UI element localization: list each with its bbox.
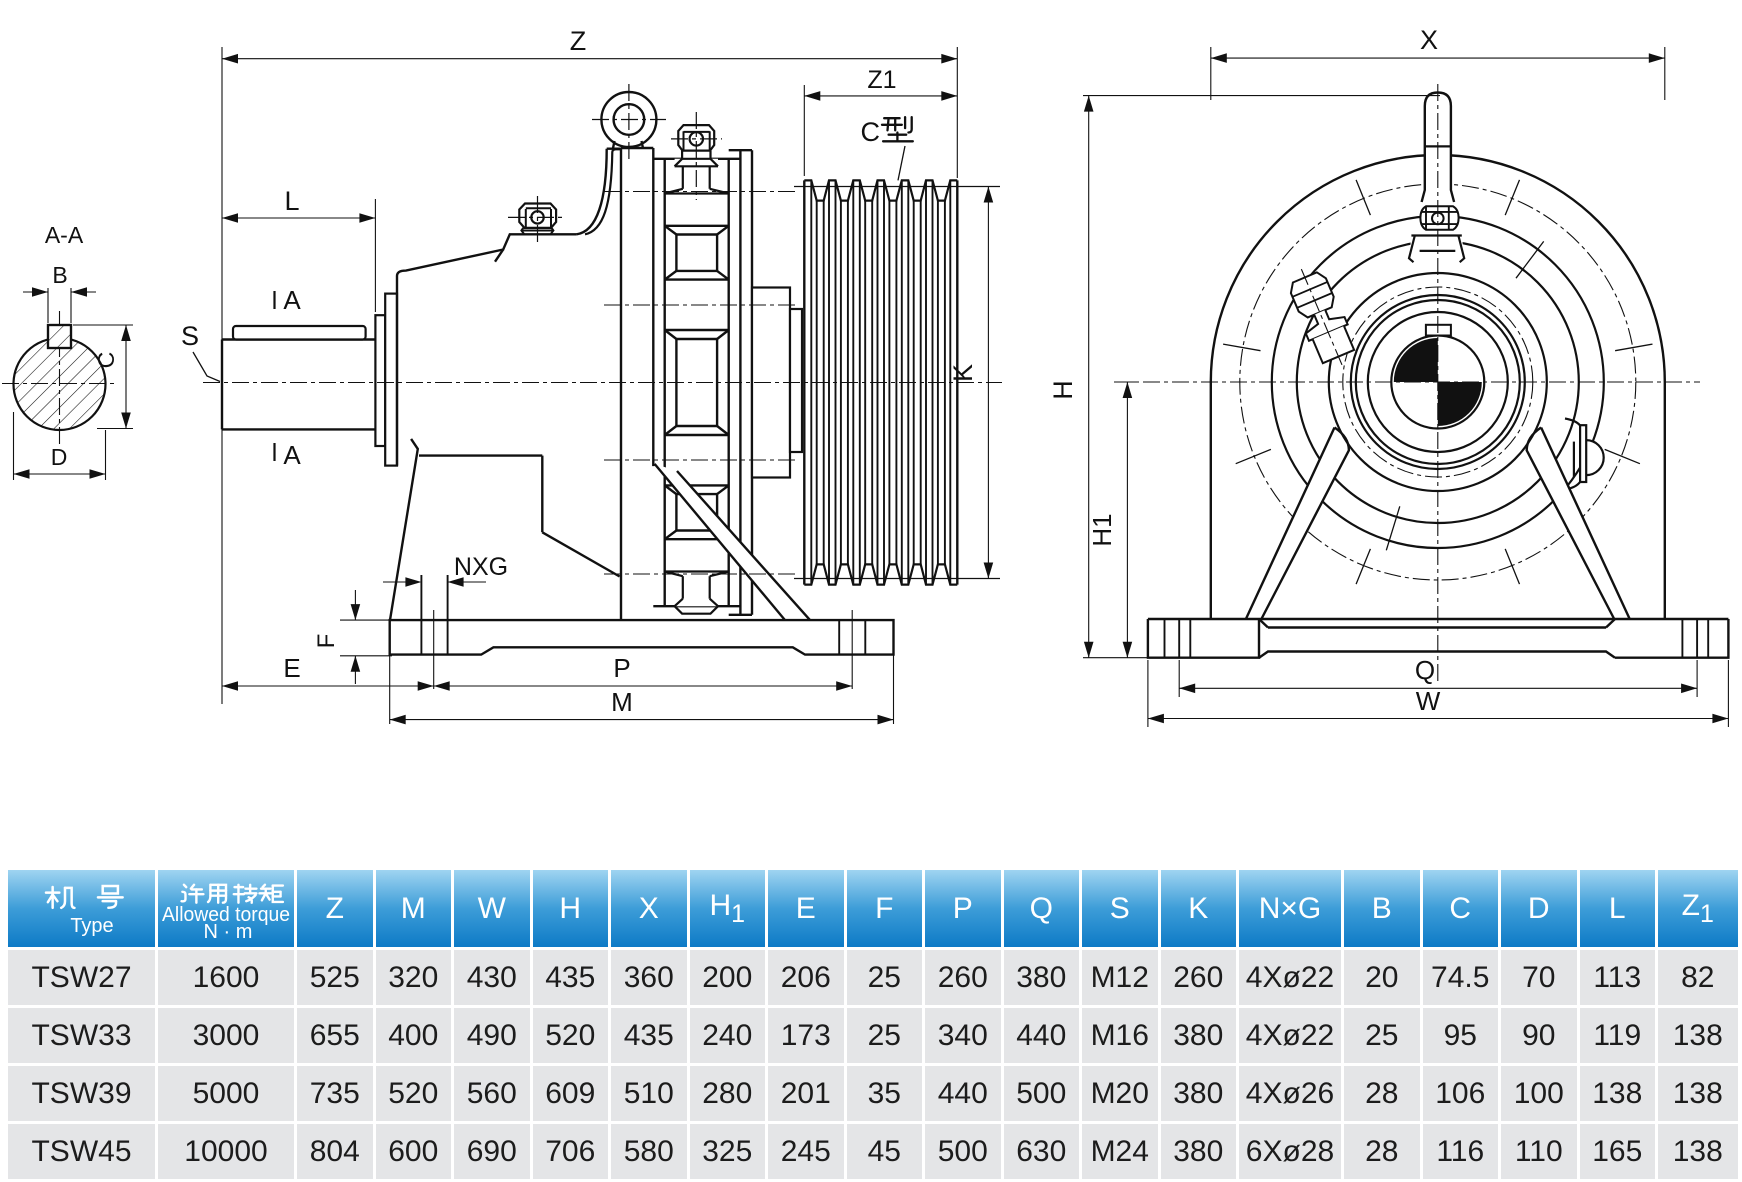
svg-text:C: C xyxy=(861,117,881,147)
svg-text:Z1: Z1 xyxy=(867,66,896,94)
svg-text:K: K xyxy=(948,364,978,382)
svg-text:Q: Q xyxy=(1415,655,1435,685)
svg-text:L: L xyxy=(284,186,299,216)
svg-text:H1: H1 xyxy=(1087,513,1117,546)
svg-text:M: M xyxy=(611,687,633,717)
svg-text:W: W xyxy=(1416,686,1441,716)
svg-text:C: C xyxy=(93,352,119,369)
svg-text:A: A xyxy=(283,440,301,470)
svg-text:B: B xyxy=(52,262,67,288)
svg-text:D: D xyxy=(51,444,68,470)
svg-text:X: X xyxy=(1420,25,1438,55)
svg-text:A-A: A-A xyxy=(45,222,84,248)
svg-text:Z: Z xyxy=(570,26,587,56)
svg-text:E: E xyxy=(283,653,300,683)
svg-text:Type: Type xyxy=(70,915,113,937)
svg-text:S: S xyxy=(181,321,199,351)
svg-text:P: P xyxy=(613,653,630,683)
svg-text:F: F xyxy=(313,634,340,649)
svg-text:A: A xyxy=(283,285,301,315)
svg-text:H: H xyxy=(1048,380,1078,400)
svg-text:N · m: N · m xyxy=(204,921,253,939)
svg-text:NXG: NXG xyxy=(454,553,508,581)
